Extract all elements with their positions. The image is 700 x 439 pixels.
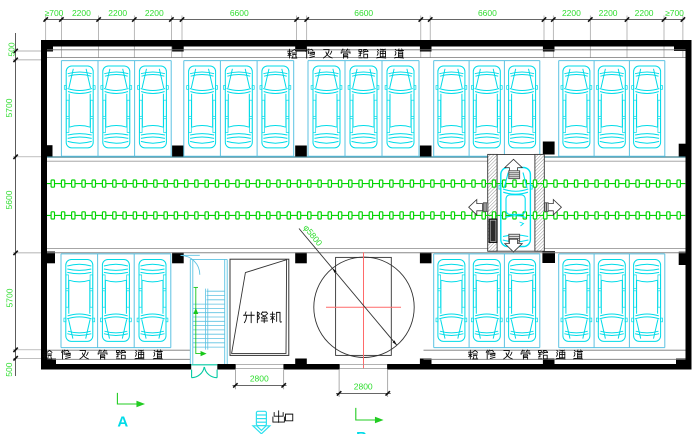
svg-text:2800: 2800 xyxy=(354,381,373,391)
svg-text:2200: 2200 xyxy=(599,8,618,18)
svg-text:B: B xyxy=(356,429,367,434)
svg-text:6600: 6600 xyxy=(230,8,249,18)
svg-text:2200: 2200 xyxy=(145,8,164,18)
svg-text:2200: 2200 xyxy=(72,8,91,18)
svg-text:5700: 5700 xyxy=(5,288,15,307)
svg-text:2800: 2800 xyxy=(250,374,269,384)
svg-text:2200: 2200 xyxy=(635,8,654,18)
svg-text:A: A xyxy=(117,414,128,431)
svg-text:500: 500 xyxy=(4,362,14,376)
svg-text:6600: 6600 xyxy=(354,8,373,18)
svg-text:6600: 6600 xyxy=(478,8,497,18)
svg-text:5700: 5700 xyxy=(4,98,14,117)
svg-text:2200: 2200 xyxy=(562,8,581,18)
svg-text:≥700: ≥700 xyxy=(45,8,64,18)
svg-text:5600: 5600 xyxy=(4,190,14,209)
svg-text:500: 500 xyxy=(7,42,17,56)
svg-text:≥700: ≥700 xyxy=(665,8,684,18)
svg-text:2200: 2200 xyxy=(108,8,127,18)
